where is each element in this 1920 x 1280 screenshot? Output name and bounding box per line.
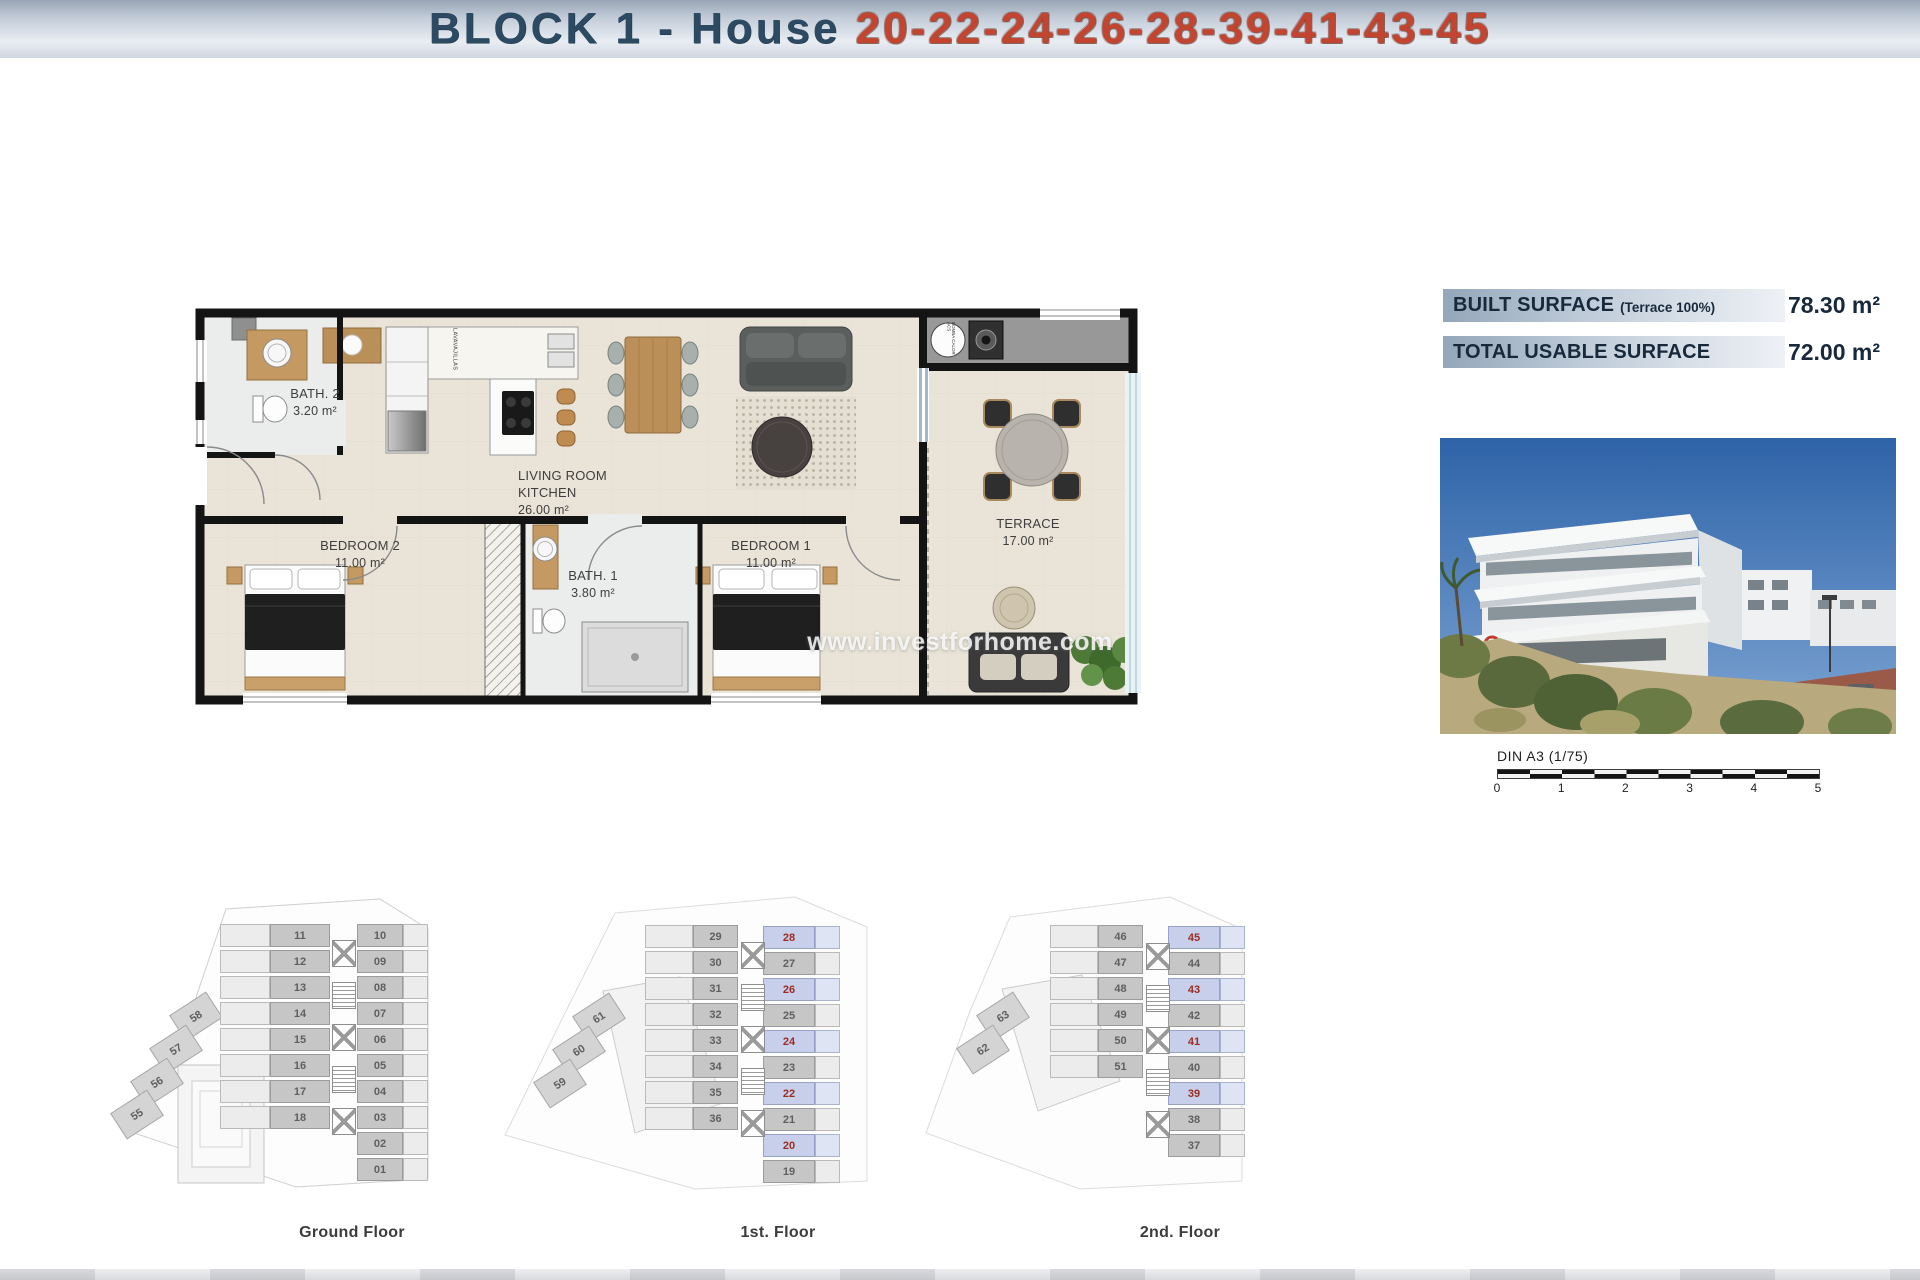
unit-19: 19 [763,1160,815,1183]
utility-closet [927,317,1129,363]
unit-26-terrace [815,978,840,1001]
unit-39-terrace [1220,1082,1245,1105]
unit-27: 27 [763,952,815,975]
unit-38-terrace [1220,1108,1245,1131]
unit-34: 34 [693,1055,738,1078]
unit-15: 15 [270,1028,330,1051]
scale-tick-0: 0 [1494,781,1501,795]
built-surface-bar: BUILT SURFACE (Terrace 100%) [1443,289,1785,322]
unit-09-terrace [403,950,428,973]
scale-bar [1497,769,1820,779]
unit-28: 28 [763,926,815,949]
unit-35-terrace [645,1081,693,1104]
unit-22: 22 [763,1082,815,1105]
heat-pump-annotation: BOMBA CALOR ACS [941,322,955,360]
sofa [740,327,852,391]
unit-42: 42 [1168,1004,1220,1027]
floor-label-second: 2nd. Floor [1080,1224,1280,1242]
usable-surface-value: 72.00 m² [1780,336,1880,368]
unit-44-terrace [1220,952,1245,975]
dishwasher-annotation: LAVAVAJILLAS [451,328,457,370]
unit-43: 43 [1168,978,1220,1001]
unit-40: 40 [1168,1056,1220,1079]
unit-08: 08 [357,976,403,999]
unit-20-terrace [815,1134,840,1157]
scale-label: DIN A3 (1/75) [1497,748,1588,764]
unit-04-terrace [403,1080,428,1103]
scale-tick-1: 1 [1558,781,1565,795]
unit-31-terrace [645,977,693,1000]
title-prefix: BLOCK 1 - House [429,4,856,53]
scale-ticks: 0 1 2 3 4 5 [1497,781,1818,795]
unit-36-terrace [645,1107,693,1130]
unit-28-terrace [815,926,840,949]
unit-38: 38 [1168,1108,1220,1131]
unit-15-terrace [220,1028,270,1051]
unit-27-terrace [815,952,840,975]
unit-22-terrace [815,1082,840,1105]
unit-48-terrace [1050,977,1098,1000]
unit-30-terrace [645,951,693,974]
unit-03: 03 [357,1106,403,1129]
unit-51: 51 [1098,1055,1143,1078]
unit-45: 45 [1168,926,1220,949]
unit-column-right: 28272625242322212019 [763,926,840,1186]
unit-02-terrace [403,1132,428,1155]
unit-13-terrace [220,976,270,999]
unit-21-terrace [815,1108,840,1131]
unit-17: 17 [270,1080,330,1103]
unit-37: 37 [1168,1134,1220,1157]
unit-33: 33 [693,1029,738,1052]
room-label-terrace: TERRACE17.00 m² [968,516,1088,549]
unit-06-terrace [403,1028,428,1051]
unit-14-terrace [220,1002,270,1025]
stair-elevator-core [1146,943,1170,1138]
unit-16: 16 [270,1054,330,1077]
unit-01-terrace [403,1158,428,1181]
unit-49: 49 [1098,1003,1143,1026]
unit-10: 10 [357,924,403,947]
unit-50: 50 [1098,1029,1143,1052]
wardrobe [485,522,523,698]
keyplan-first-floor: 616059 2930313233343536 2827262524232221… [495,895,875,1195]
unit-12: 12 [270,950,330,973]
unit-30: 30 [693,951,738,974]
unit-column-left: 1112131415161718 [220,924,330,1132]
building-photo [1440,438,1896,734]
room-label-bedroom1: BEDROOM 111.00 m² [711,538,831,571]
unit-column-left: 2930313233343536 [645,925,738,1133]
unit-column-left: 464748495051 [1050,925,1143,1081]
unit-column-right: 454443424140393837 [1168,926,1245,1160]
unit-36: 36 [693,1107,738,1130]
unit-24: 24 [763,1030,815,1053]
stair-elevator-core [332,940,356,1135]
unit-44: 44 [1168,952,1220,975]
unit-32: 32 [693,1003,738,1026]
unit-07-terrace [403,1002,428,1025]
unit-50-terrace [1050,1029,1098,1052]
unit-51-terrace [1050,1055,1098,1078]
usable-surface-label: TOTAL USABLE SURFACE [1453,341,1710,364]
unit-47-terrace [1050,951,1098,974]
unit-02: 02 [357,1132,403,1155]
room-label-living: LIVING ROOM KITCHEN26.00 m² [518,468,668,518]
room-label-bath2: BATH. 23.20 m² [270,386,360,419]
unit-18-terrace [220,1106,270,1129]
unit-41: 41 [1168,1030,1220,1053]
unit-29-terrace [645,925,693,948]
unit-24-terrace [815,1030,840,1053]
unit-35: 35 [693,1081,738,1104]
unit-46: 46 [1098,925,1143,948]
unit-43-terrace [1220,978,1245,1001]
floor-label-ground: Ground Floor [252,1224,452,1242]
brochure-page: BLOCK 1 - House 20-22-24-26-28-39-41-43-… [0,0,1920,1280]
unit-25-terrace [815,1004,840,1027]
unit-48: 48 [1098,977,1143,1000]
cropped-gallery-strip [0,1269,1920,1280]
unit-09: 09 [357,950,403,973]
unit-23-terrace [815,1056,840,1079]
unit-17-terrace [220,1080,270,1103]
unit-12-terrace [220,950,270,973]
unit-18: 18 [270,1106,330,1129]
unit-14: 14 [270,1002,330,1025]
unit-25: 25 [763,1004,815,1027]
unit-05-terrace [403,1054,428,1077]
unit-39: 39 [1168,1082,1220,1105]
unit-26: 26 [763,978,815,1001]
scale-tick-5: 5 [1815,781,1822,795]
unit-29: 29 [693,925,738,948]
unit-16-terrace [220,1054,270,1077]
scale-tick-4: 4 [1750,781,1757,795]
built-surface-sublabel: (Terrace 100%) [1620,297,1715,315]
room-label-bedroom2: BEDROOM 211.00 m² [300,538,420,571]
stair-elevator-core [741,942,765,1137]
usable-surface-bar: TOTAL USABLE SURFACE [1443,336,1785,368]
unit-42-terrace [1220,1004,1245,1027]
watermark: www.investforhome.com [0,628,1920,657]
unit-40-terrace [1220,1056,1245,1079]
unit-13: 13 [270,976,330,999]
unit-20: 20 [763,1134,815,1157]
unit-04: 04 [357,1080,403,1103]
unit-31: 31 [693,977,738,1000]
unit-11: 11 [270,924,330,947]
scale-tick-3: 3 [1686,781,1693,795]
unit-41-terrace [1220,1030,1245,1053]
built-surface-label: BUILT SURFACE [1453,294,1614,317]
unit-33-terrace [645,1029,693,1052]
floor-label-first: 1st. Floor [678,1224,878,1242]
keyplan-second-floor: 6362 464748495051 454443424140393837 [920,895,1250,1195]
unit-08-terrace [403,976,428,999]
unit-46-terrace [1050,925,1098,948]
page-title: BLOCK 1 - House 20-22-24-26-28-39-41-43-… [429,4,1492,54]
unit-23: 23 [763,1056,815,1079]
unit-05: 05 [357,1054,403,1077]
unit-37-terrace [1220,1134,1245,1157]
unit-47: 47 [1098,951,1143,974]
keyplan-ground-floor: 58575655 1112131415161718 10090807060504… [130,895,430,1195]
unit-49-terrace [1050,1003,1098,1026]
unit-19-terrace [815,1160,840,1183]
unit-07: 07 [357,1002,403,1025]
unit-11-terrace [220,924,270,947]
dining-set [608,337,698,433]
header-band: BLOCK 1 - House 20-22-24-26-28-39-41-43-… [0,0,1920,58]
room-label-bath1: BATH. 13.80 m² [548,568,638,601]
unit-06: 06 [357,1028,403,1051]
unit-10-terrace [403,924,428,947]
unit-01: 01 [357,1158,403,1181]
scale-tick-2: 2 [1622,781,1629,795]
unit-column-right: 10090807060504030201 [357,924,428,1184]
built-surface-value: 78.30 m² [1780,289,1880,322]
unit-32-terrace [645,1003,693,1026]
coffee-table [752,417,812,477]
unit-34-terrace [645,1055,693,1078]
unit-45-terrace [1220,926,1245,949]
title-house-numbers: 20-22-24-26-28-39-41-43-45 [856,4,1492,53]
unit-21: 21 [763,1108,815,1131]
unit-03-terrace [403,1106,428,1129]
